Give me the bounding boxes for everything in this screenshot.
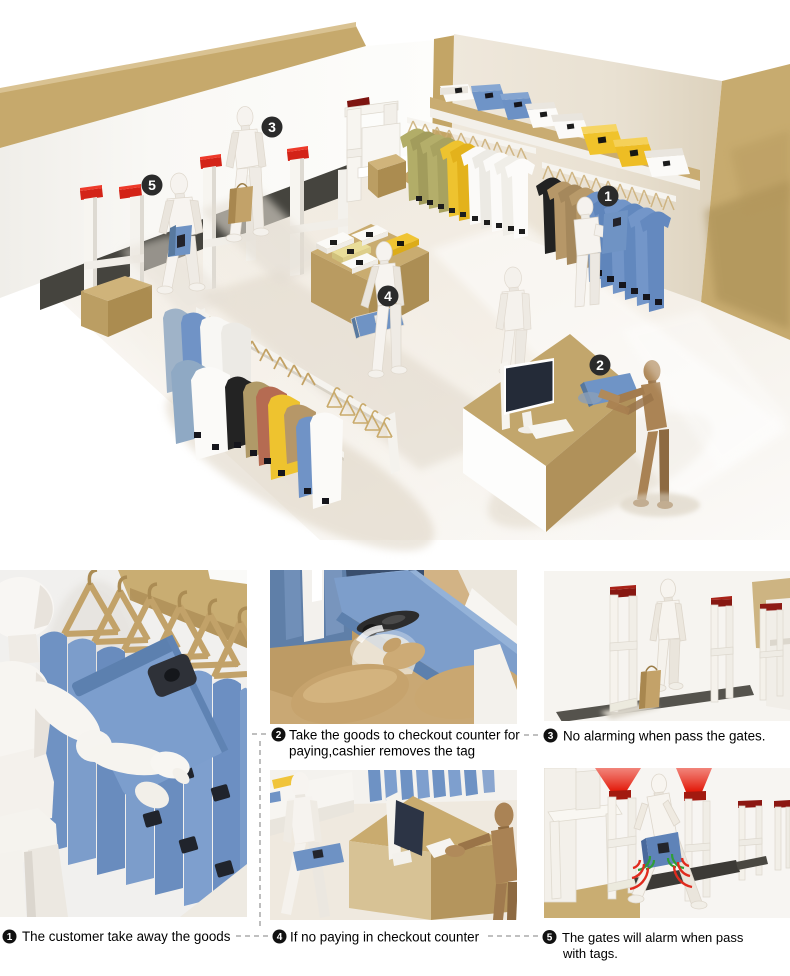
- svg-text:2: 2: [596, 357, 604, 373]
- svg-text:Take the goods to checkout cou: Take the goods to checkout counter for: [289, 728, 520, 743]
- svg-text:3: 3: [268, 119, 276, 135]
- svg-text:The gates will alarm when pass: The gates will alarm when pass: [562, 930, 744, 945]
- svg-text:No alarming when pass the gate: No alarming when pass the gates.: [563, 729, 765, 744]
- svg-text:If no paying in checkout count: If no paying in checkout counter: [290, 930, 480, 945]
- svg-text:5: 5: [547, 933, 553, 944]
- svg-text:1: 1: [604, 188, 612, 204]
- svg-text:paying,cashier removes the tag: paying,cashier removes the tag: [289, 744, 475, 759]
- svg-text:4: 4: [277, 932, 283, 943]
- svg-text:3: 3: [548, 731, 554, 742]
- svg-text:1: 1: [7, 932, 13, 943]
- svg-text:with tags.: with tags.: [562, 946, 618, 961]
- svg-text:The customer take away the goo: The customer take away the goods: [22, 929, 231, 944]
- svg-text:2: 2: [276, 730, 282, 741]
- svg-text:4: 4: [384, 288, 392, 304]
- svg-text:5: 5: [148, 177, 156, 193]
